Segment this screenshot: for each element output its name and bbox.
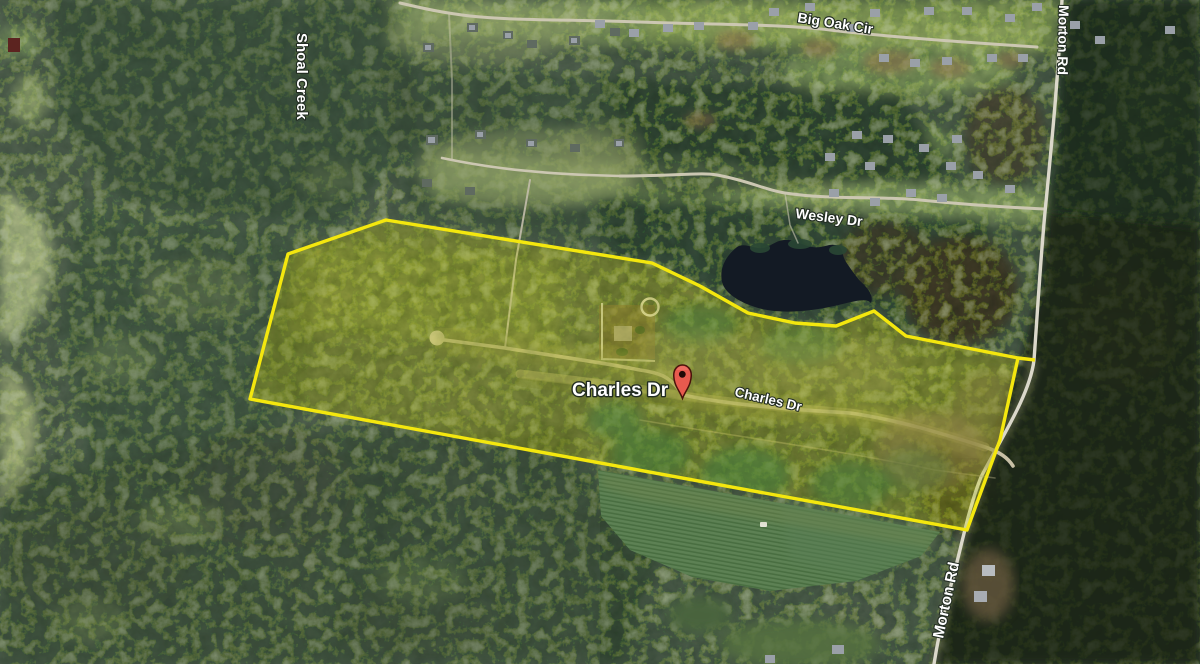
svg-text:Morton Rd: Morton Rd: [1055, 5, 1072, 75]
svg-text:Shoal Creek: Shoal Creek: [293, 33, 310, 120]
svg-text:Charles Dr: Charles Dr: [572, 380, 669, 401]
